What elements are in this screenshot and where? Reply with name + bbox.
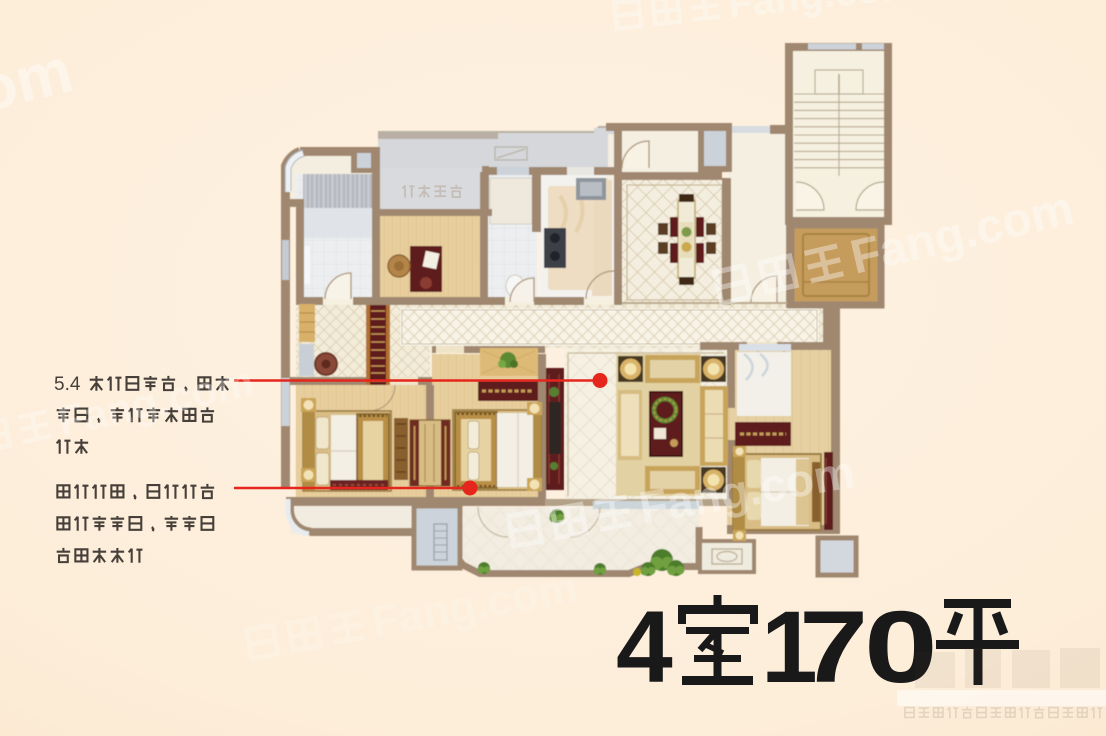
svg-text:4: 4 [616,590,673,704]
svg-text:Fang.com: Fang.com [0,35,79,175]
svg-text:Fang.com: Fang.com [54,358,258,445]
svg-text:5.4: 5.4 [54,374,81,395]
svg-text:7: 7 [799,591,868,705]
svg-text:Fang.com: Fang.com [726,0,918,27]
svg-text:Fang.com: Fang.com [368,563,581,647]
